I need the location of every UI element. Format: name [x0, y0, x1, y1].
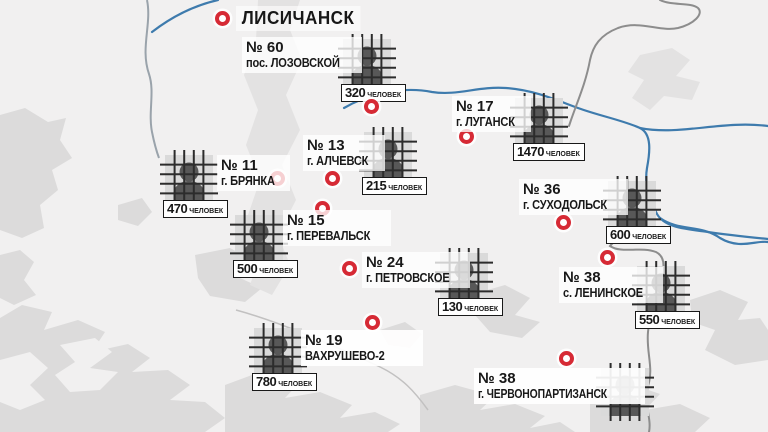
prisoner-behind-bars-icon: 470 ЧЕЛОВЕК [160, 150, 218, 208]
facility-number: № 19 [305, 332, 417, 349]
facility-label: № 11 г. БРЯНКА [217, 155, 290, 191]
prisoner-behind-bars-icon: 780 ЧЕЛОВЕК [249, 323, 307, 381]
facility-number: № 11 [221, 157, 284, 174]
location-marker [215, 11, 230, 26]
map-infographic: ЛИСИЧАНСК № 60 пос. ЛОЗОВСКОЙ 320 ЧЕЛОВЕ… [0, 0, 768, 432]
inmate-unit: ЧЕЛОВЕК [546, 151, 580, 158]
facility-number: № 24 [366, 254, 464, 271]
inmate-count: 1470 [517, 144, 544, 159]
facility-number: № 60 [246, 39, 356, 56]
facility-label: № 13 г. АЛЧЕВСК [303, 135, 385, 171]
inmate-count-badge: 215 ЧЕЛОВЕК [362, 177, 427, 195]
inmate-count-badge: 550 ЧЕЛОВЕК [635, 311, 700, 329]
facility-place: ВАХРУШЕВО-2 [305, 349, 400, 363]
inmate-unit: ЧЕЛОВЕК [388, 185, 422, 192]
inmate-count-badge: 1470 ЧЕЛОВЕК [513, 143, 585, 161]
facility-number: № 13 [307, 137, 379, 154]
inmate-count-badge: 500 ЧЕЛОВЕК [233, 260, 298, 278]
facility-label: № 38 г. ЧЕРВОНОПАРТИЗАНСК [474, 368, 645, 404]
inmate-count-badge: 470 ЧЕЛОВЕК [163, 200, 228, 218]
location-marker [325, 171, 340, 186]
facility-place: г. БРЯНКА [221, 174, 275, 188]
inmate-unit: ЧЕЛОВЕК [189, 208, 223, 215]
facility-number: № 17 [456, 98, 525, 115]
facility-number: № 36 [523, 181, 622, 198]
prisoner-behind-bars-icon: 500 ЧЕЛОВЕК [230, 210, 288, 268]
facility-place: с. ЛЕНИНСКОЕ [563, 286, 643, 300]
location-marker [364, 99, 379, 114]
inmate-count: 500 [237, 261, 257, 276]
facility-place: пос. ЛОЗОВСКОЙ [246, 56, 340, 70]
facility-label: № 38 с. ЛЕНИНСКОЕ [559, 267, 663, 303]
facility-number: № 38 [478, 370, 639, 387]
inmate-unit: ЧЕЛОВЕК [278, 381, 312, 388]
facility-place: г. СУХОДОЛЬСК [523, 198, 607, 212]
inmate-count-badge: 130 ЧЕЛОВЕК [438, 298, 503, 316]
facility-label: № 24 г. ПЕТРОВСКОЕ [362, 252, 470, 288]
facility-label: № 60 пос. ЛОЗОВСКОЙ [242, 37, 362, 73]
facility-place: г. ЛУГАНСК [456, 115, 515, 129]
city-title: ЛИСИЧАНСК [236, 6, 360, 31]
location-marker [342, 261, 357, 276]
inmate-unit: ЧЕЛОВЕК [632, 234, 666, 241]
inmate-unit: ЧЕЛОВЕК [367, 92, 401, 99]
inmate-count: 130 [442, 299, 462, 314]
inmate-count: 600 [610, 227, 630, 242]
inmate-unit: ЧЕЛОВЕК [661, 319, 695, 326]
facility-label: № 19 ВАХРУШЕВО-2 [301, 330, 423, 366]
facility-place: г. ПЕРЕВАЛЬСК [287, 229, 370, 243]
location-marker [556, 215, 571, 230]
location-marker [600, 250, 615, 265]
facility-place: г. ПЕТРОВСКОЕ [366, 271, 450, 285]
inmate-unit: ЧЕЛОВЕК [464, 306, 498, 313]
inmate-count: 780 [256, 374, 276, 389]
facility-place: г. ЧЕРВОНОПАРТИЗАНСК [478, 387, 607, 401]
location-marker [559, 351, 574, 366]
inmate-count: 215 [366, 178, 386, 193]
inmate-count: 470 [167, 201, 187, 216]
inmate-count-badge: 780 ЧЕЛОВЕК [252, 373, 317, 391]
inmate-unit: ЧЕЛОВЕК [259, 268, 293, 275]
facility-number: № 15 [287, 212, 385, 229]
inmate-count: 320 [345, 85, 365, 100]
facility-label: № 15 г. ПЕРЕВАЛЬСК [283, 210, 391, 246]
facility-place: г. АЛЧЕВСК [307, 154, 368, 168]
facility-number: № 38 [563, 269, 657, 286]
inmate-count: 550 [639, 312, 659, 327]
facility-label: № 36 г. СУХОДОЛЬСК [519, 179, 628, 215]
inmate-count-badge: 600 ЧЕЛОВЕК [606, 226, 671, 244]
facility-label: № 17 г. ЛУГАНСК [452, 96, 531, 132]
location-marker [365, 315, 380, 330]
